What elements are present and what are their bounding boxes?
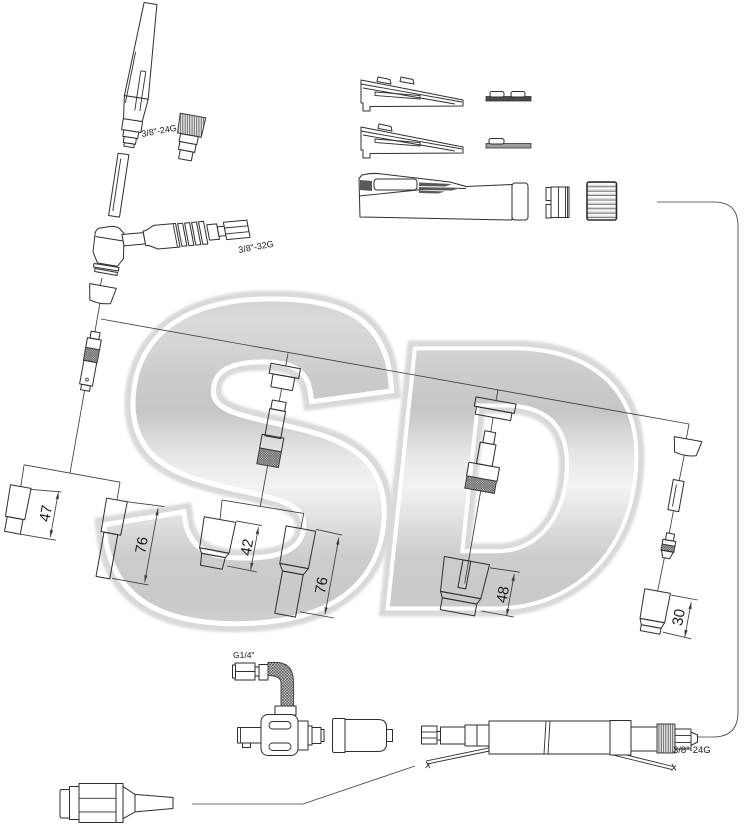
svg-text:G1/4": G1/4" — [233, 650, 254, 660]
svg-text:3/8"-24G: 3/8"-24G — [673, 745, 711, 756]
svg-text:D: D — [366, 280, 662, 674]
svg-text:48: 48 — [493, 585, 513, 604]
svg-text:3/8"-24G: 3/8"-24G — [141, 123, 178, 139]
svg-text:76: 76 — [312, 576, 332, 595]
svg-text:47: 47 — [36, 504, 56, 523]
svg-text:42: 42 — [238, 538, 258, 557]
svg-text:76: 76 — [132, 535, 152, 554]
svg-text:30: 30 — [669, 608, 689, 627]
